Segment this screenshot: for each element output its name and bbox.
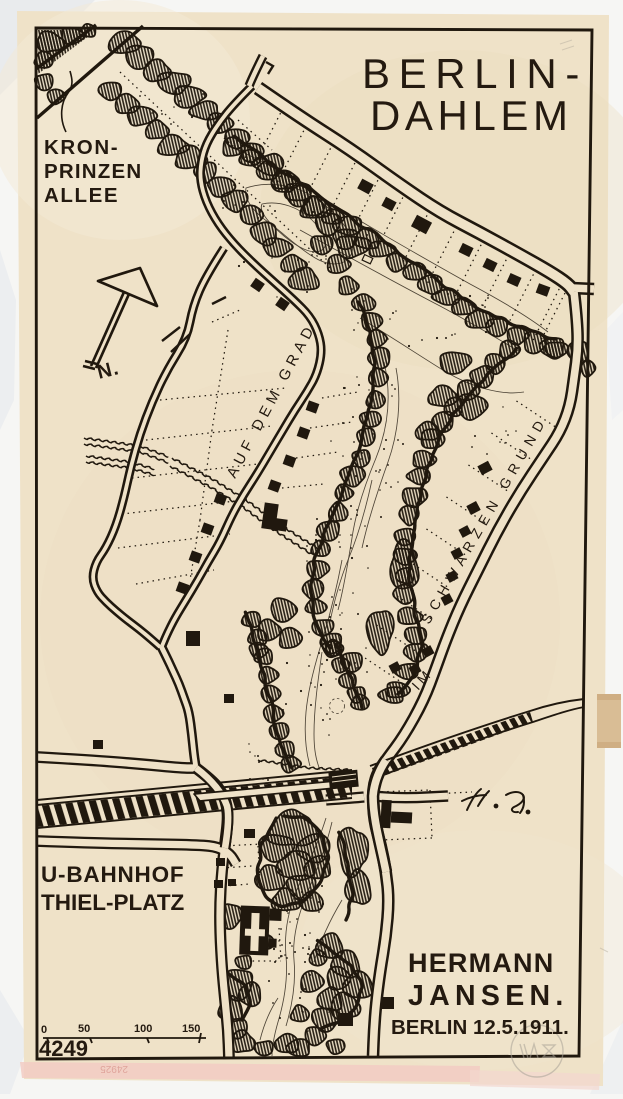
svg-text:PRINZEN: PRINZEN	[44, 160, 142, 183]
svg-text:150: 150	[182, 1023, 200, 1035]
svg-text:24925: 24925	[100, 1063, 128, 1074]
svg-text:50: 50	[78, 1023, 90, 1035]
svg-text:0: 0	[41, 1024, 47, 1036]
svg-text:JANSEN.: JANSEN.	[408, 980, 569, 1012]
svg-text:U-BAHNHOF: U-BAHNHOF	[41, 862, 184, 887]
svg-text:4249: 4249	[39, 1036, 88, 1061]
svg-text:100: 100	[134, 1023, 152, 1035]
svg-text:THIEL-PLATZ: THIEL-PLATZ	[41, 890, 185, 915]
svg-text:KRON-: KRON-	[44, 136, 119, 159]
svg-text:DAHLEM: DAHLEM	[370, 92, 573, 139]
svg-text:BERLIN 12.5.1911.: BERLIN 12.5.1911.	[391, 1016, 569, 1039]
svg-text:ALLEE: ALLEE	[44, 184, 119, 207]
svg-text:HERMANN: HERMANN	[408, 948, 554, 978]
svg-text:BERLIN-: BERLIN-	[362, 50, 588, 97]
